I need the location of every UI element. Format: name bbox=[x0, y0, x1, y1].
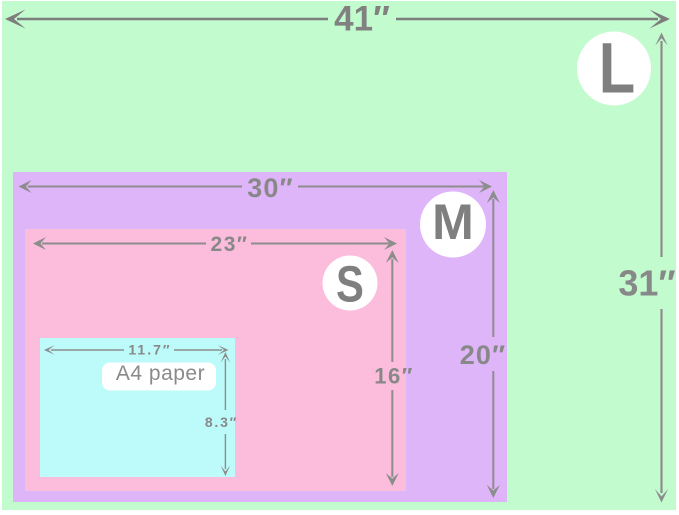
svg-text:16″: 16″ bbox=[374, 364, 414, 389]
svg-text:A4 paper: A4 paper bbox=[116, 362, 205, 385]
svg-text:L: L bbox=[599, 28, 635, 107]
svg-text:31″: 31″ bbox=[618, 263, 675, 304]
svg-text:8.3″: 8.3″ bbox=[205, 414, 238, 430]
svg-text:11.7″: 11.7″ bbox=[128, 342, 171, 358]
svg-text:41″: 41″ bbox=[334, 0, 390, 39]
svg-text:20″: 20″ bbox=[460, 340, 507, 370]
svg-text:23″: 23″ bbox=[211, 233, 249, 256]
svg-text:M: M bbox=[432, 194, 474, 250]
svg-text:S: S bbox=[336, 256, 364, 313]
svg-text:30″: 30″ bbox=[247, 173, 294, 203]
